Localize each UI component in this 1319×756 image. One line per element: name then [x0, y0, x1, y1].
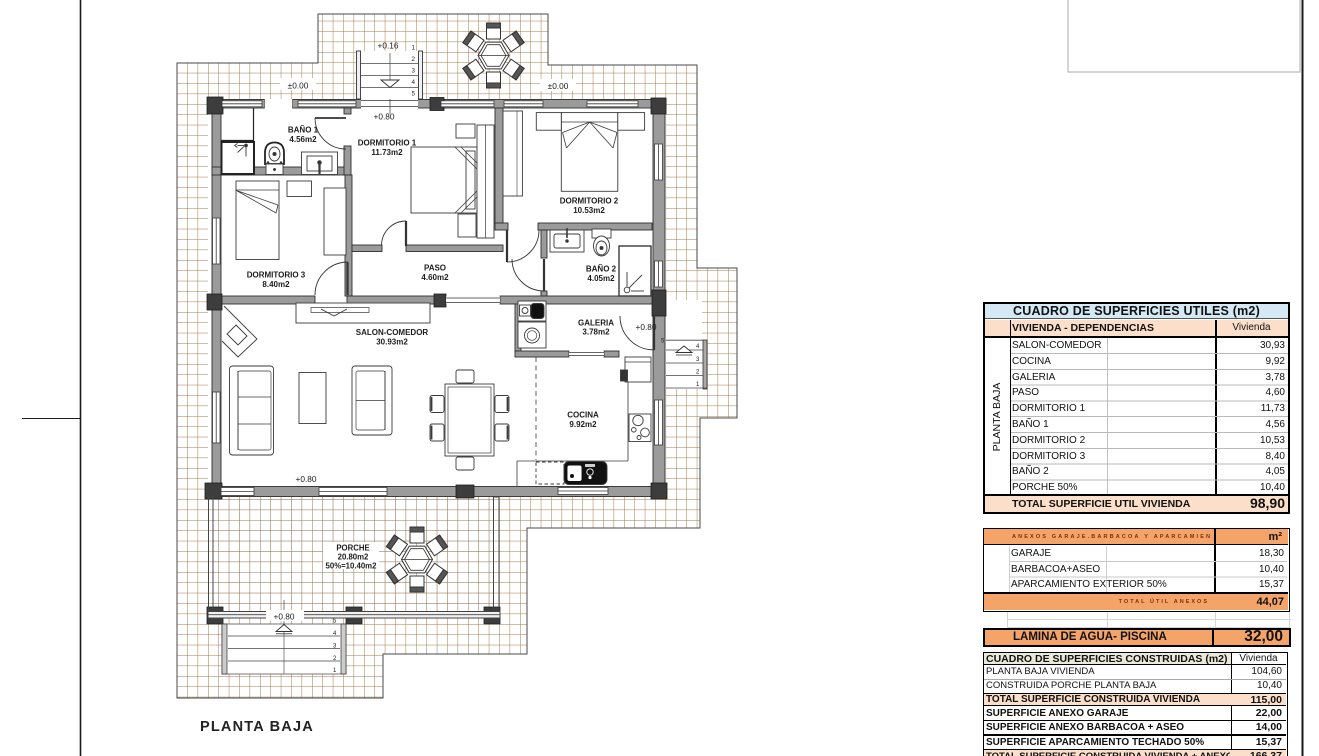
- svg-text:+0.80: +0.80: [296, 474, 317, 484]
- svg-text:COCINA: COCINA: [567, 411, 599, 420]
- svg-text:DORMITORIO 2: DORMITORIO 2: [560, 197, 619, 206]
- svg-text:50%=10.40m2: 50%=10.40m2: [326, 562, 378, 571]
- svg-text:30.93m2: 30.93m2: [376, 338, 408, 347]
- svg-text:4.60m2: 4.60m2: [421, 273, 449, 282]
- svg-text:±0.00: ±0.00: [548, 81, 569, 91]
- svg-text:2: 2: [411, 56, 415, 63]
- svg-text:4.05m2: 4.05m2: [587, 274, 615, 283]
- svg-text:GALERIA: GALERIA: [578, 319, 614, 328]
- svg-text:3: 3: [411, 68, 415, 75]
- svg-text:DORMITORIO 3: DORMITORIO 3: [247, 271, 306, 280]
- svg-text:+0.16: +0.16: [378, 41, 399, 51]
- svg-text:PLANTA BAJA: PLANTA BAJA: [200, 719, 314, 735]
- svg-text:4.56m2: 4.56m2: [289, 135, 317, 144]
- svg-text:SALON-COMEDOR: SALON-COMEDOR: [356, 328, 429, 337]
- svg-text:11.73m2: 11.73m2: [371, 148, 403, 157]
- svg-text:±0.00: ±0.00: [288, 81, 309, 91]
- svg-text:BAÑO 2: BAÑO 2: [586, 265, 617, 274]
- svg-text:DORMITORIO 1: DORMITORIO 1: [358, 139, 417, 148]
- svg-text:8.40m2: 8.40m2: [262, 280, 290, 289]
- svg-text:BAÑO 1: BAÑO 1: [288, 126, 319, 135]
- svg-text:PASO: PASO: [424, 264, 446, 273]
- svg-text:10.53m2: 10.53m2: [573, 206, 605, 215]
- svg-text:+0.80: +0.80: [374, 112, 395, 122]
- svg-text:+0.80: +0.80: [636, 322, 657, 332]
- svg-text:1: 1: [411, 45, 415, 52]
- svg-text:9.92m2: 9.92m2: [569, 420, 597, 429]
- svg-text:20.80m2: 20.80m2: [338, 553, 369, 562]
- svg-text:PORCHE: PORCHE: [336, 544, 369, 553]
- svg-text:5: 5: [411, 91, 415, 98]
- svg-text:4: 4: [411, 79, 415, 86]
- svg-text:+0.80: +0.80: [274, 612, 295, 622]
- svg-text:3.78m2: 3.78m2: [582, 328, 610, 337]
